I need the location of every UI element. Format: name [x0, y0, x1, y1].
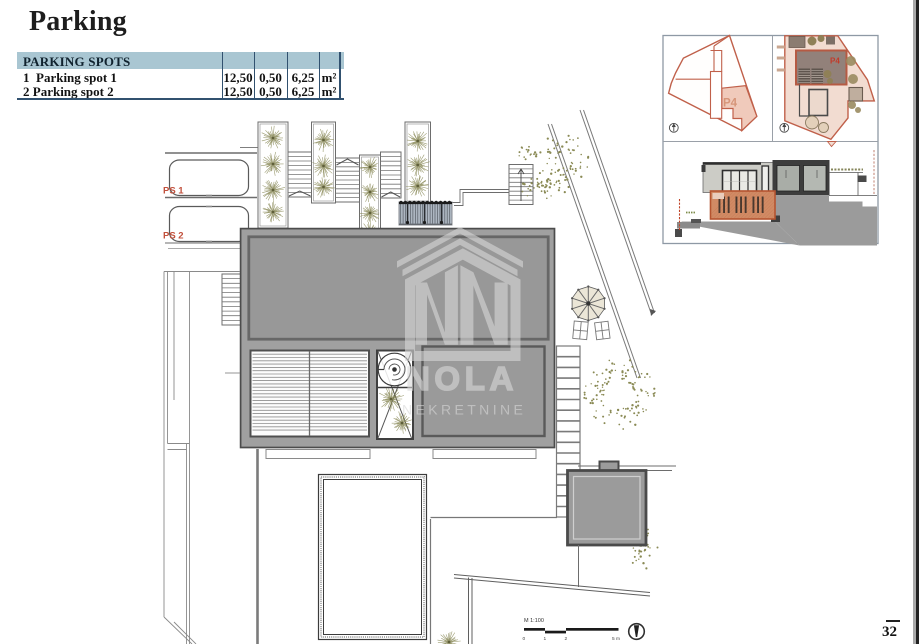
svg-text:0: 0: [523, 636, 526, 642]
svg-text:NOLA: NOLA: [406, 360, 518, 397]
svg-text:5 m: 5 m: [612, 636, 620, 642]
svg-text:PS 2: PS 2: [163, 231, 184, 242]
svg-text:1: 1: [544, 636, 547, 642]
svg-text:2: 2: [565, 636, 568, 642]
svg-text:M 1:100: M 1:100: [524, 618, 544, 624]
svg-text:P4: P4: [830, 57, 840, 66]
svg-text:P4: P4: [723, 98, 738, 110]
svg-text:PS 1: PS 1: [163, 186, 184, 197]
svg-text:NEKRETNINE: NEKRETNINE: [402, 402, 526, 418]
